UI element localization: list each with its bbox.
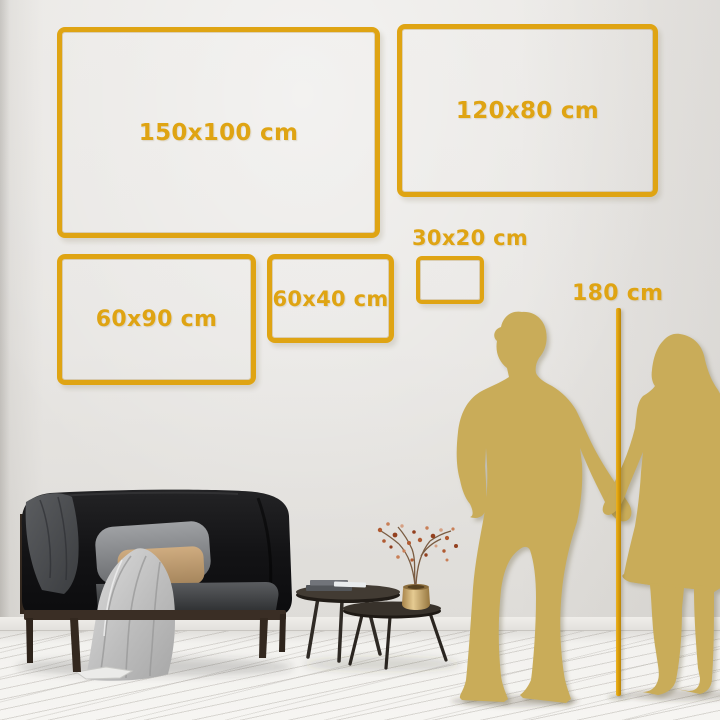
height-ruler-line <box>616 308 621 696</box>
size-frame-150x100: 150x100 cm <box>57 27 380 238</box>
size-guide-scene: 180 cm 150x100 cm 120x80 cm 60x90 cm 60x… <box>0 0 720 720</box>
size-frame-60x90: 60x90 cm <box>57 254 256 385</box>
gold-vase <box>402 584 430 610</box>
size-label-120x80: 120x80 cm <box>456 98 599 124</box>
sofa-wood-rail <box>24 610 286 620</box>
size-label-60x40: 60x40 cm <box>272 287 388 311</box>
nesting-coffee-tables <box>296 522 458 668</box>
size-label-30x20: 30x20 cm <box>412 226 528 250</box>
size-label-60x90: 60x90 cm <box>96 307 217 332</box>
height-ruler-label: 180 cm <box>572 281 662 306</box>
blossoms <box>378 522 458 561</box>
sofa <box>20 490 292 681</box>
size-label-150x100: 150x100 cm <box>139 120 298 146</box>
size-frame-60x40: 60x40 cm <box>267 254 394 343</box>
size-frame-120x80: 120x80 cm <box>397 24 658 197</box>
dried-branches <box>381 527 451 585</box>
size-frame-30x20 <box>416 256 484 304</box>
